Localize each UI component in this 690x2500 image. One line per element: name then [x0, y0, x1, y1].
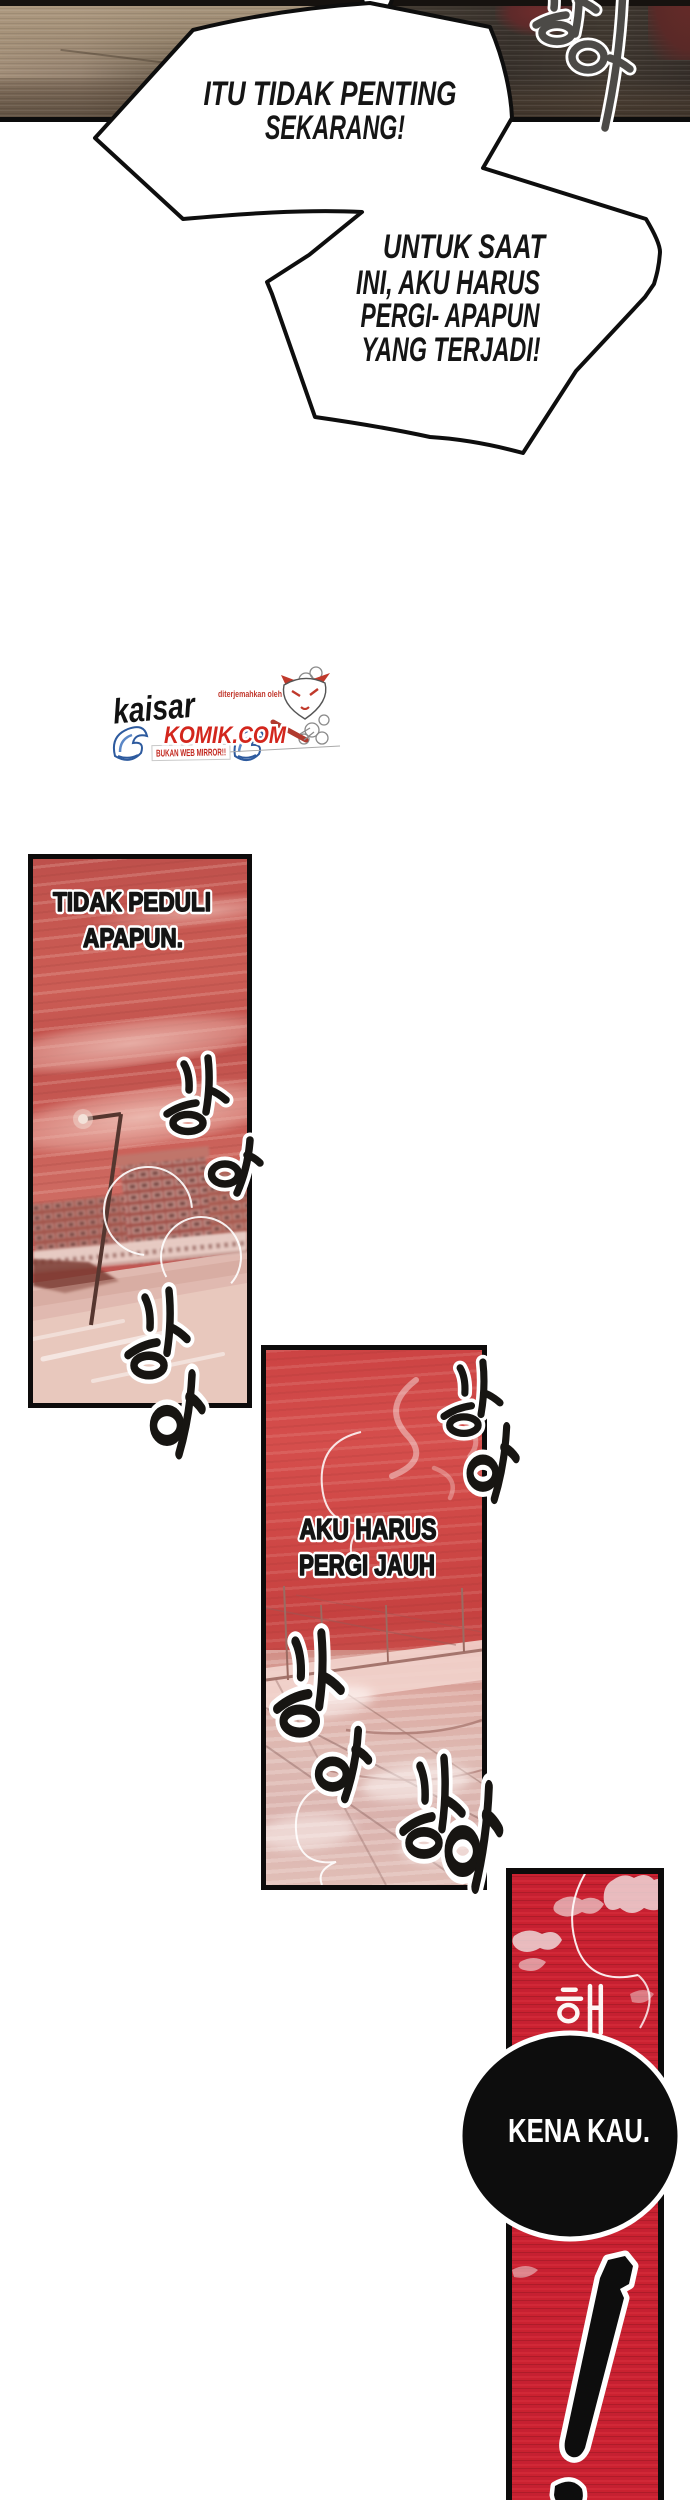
svg-text:KENA KAU.: KENA KAU.: [508, 2112, 650, 2149]
svg-text:PERGI JAUH: PERGI JAUH: [299, 1550, 435, 1582]
svg-text:TIDAK PEDULI: TIDAK PEDULI: [53, 887, 211, 917]
svg-text:APAPUN.: APAPUN.: [83, 923, 183, 953]
svg-text:ITU TIDAK PENTING: ITU TIDAK PENTING: [204, 75, 457, 113]
svg-text:BUKAN WEB MIRROR!!: BUKAN WEB MIRROR!!: [156, 747, 226, 759]
svg-text:SEKARANG!: SEKARANG!: [265, 109, 405, 147]
svg-text:YANG TERJADI!: YANG TERJADI!: [362, 331, 541, 369]
svg-text:KOMIK.COM: KOMIK.COM: [164, 722, 287, 749]
svg-text:UNTUK SAAT: UNTUK SAAT: [383, 228, 547, 266]
svg-text:AKU HARUS: AKU HARUS: [300, 1514, 437, 1546]
svg-text:diterjemahkan oleh: diterjemahkan oleh: [218, 689, 282, 700]
svg-text:PERGI- APAPUN: PERGI- APAPUN: [361, 297, 541, 335]
